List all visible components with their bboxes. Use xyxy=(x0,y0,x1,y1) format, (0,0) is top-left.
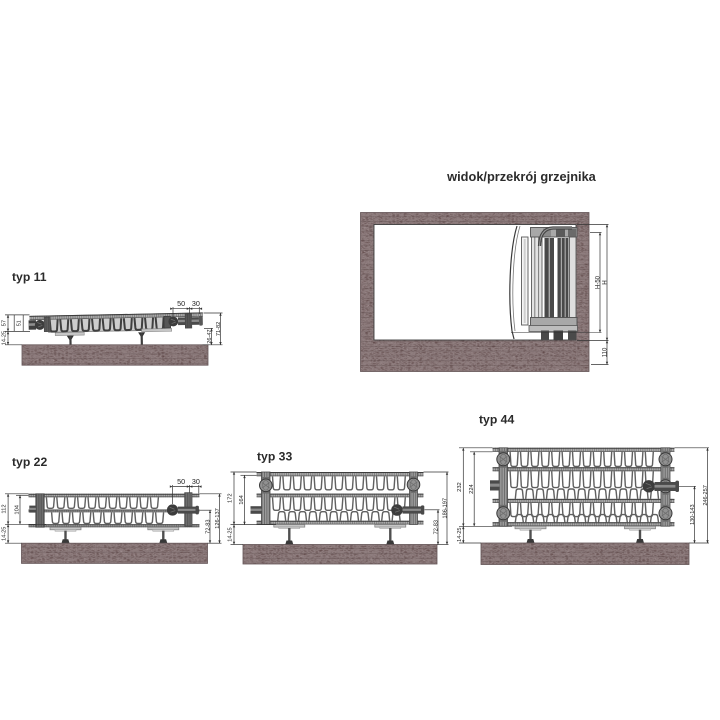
svg-text:71-82: 71-82 xyxy=(216,322,222,336)
svg-text:typ 22: typ 22 xyxy=(12,455,47,469)
svg-text:typ 33: typ 33 xyxy=(257,450,292,464)
svg-text:104: 104 xyxy=(15,504,21,514)
svg-text:112: 112 xyxy=(2,504,8,513)
svg-text:widok/przekrój grzejnika: widok/przekrój grzejnika xyxy=(446,169,597,184)
svg-text:246-257: 246-257 xyxy=(703,485,709,506)
svg-text:14-25: 14-25 xyxy=(2,331,8,345)
svg-text:30: 30 xyxy=(192,299,200,308)
svg-text:14-25: 14-25 xyxy=(2,527,8,541)
svg-text:30: 30 xyxy=(192,477,200,486)
svg-text:H: H xyxy=(602,280,609,284)
svg-text:186-197: 186-197 xyxy=(442,498,448,519)
svg-text:51: 51 xyxy=(17,320,23,326)
svg-text:172: 172 xyxy=(228,493,234,503)
svg-text:164: 164 xyxy=(239,494,245,504)
svg-text:224: 224 xyxy=(469,483,475,493)
svg-text:14-25: 14-25 xyxy=(457,527,463,541)
svg-text:72-83: 72-83 xyxy=(205,520,211,534)
svg-text:232: 232 xyxy=(457,482,463,492)
svg-text:26-47: 26-47 xyxy=(207,329,213,343)
svg-text:50: 50 xyxy=(177,299,185,308)
svg-text:72-83: 72-83 xyxy=(433,520,439,534)
svg-text:130-143: 130-143 xyxy=(690,504,696,525)
svg-text:57: 57 xyxy=(2,320,8,326)
svg-text:typ 44: typ 44 xyxy=(479,413,514,427)
svg-text:14-25: 14-25 xyxy=(228,527,234,541)
svg-text:50: 50 xyxy=(177,477,185,486)
svg-text:typ 11: typ 11 xyxy=(12,270,47,284)
svg-text:126-137: 126-137 xyxy=(215,508,221,529)
svg-text:110: 110 xyxy=(603,347,609,357)
